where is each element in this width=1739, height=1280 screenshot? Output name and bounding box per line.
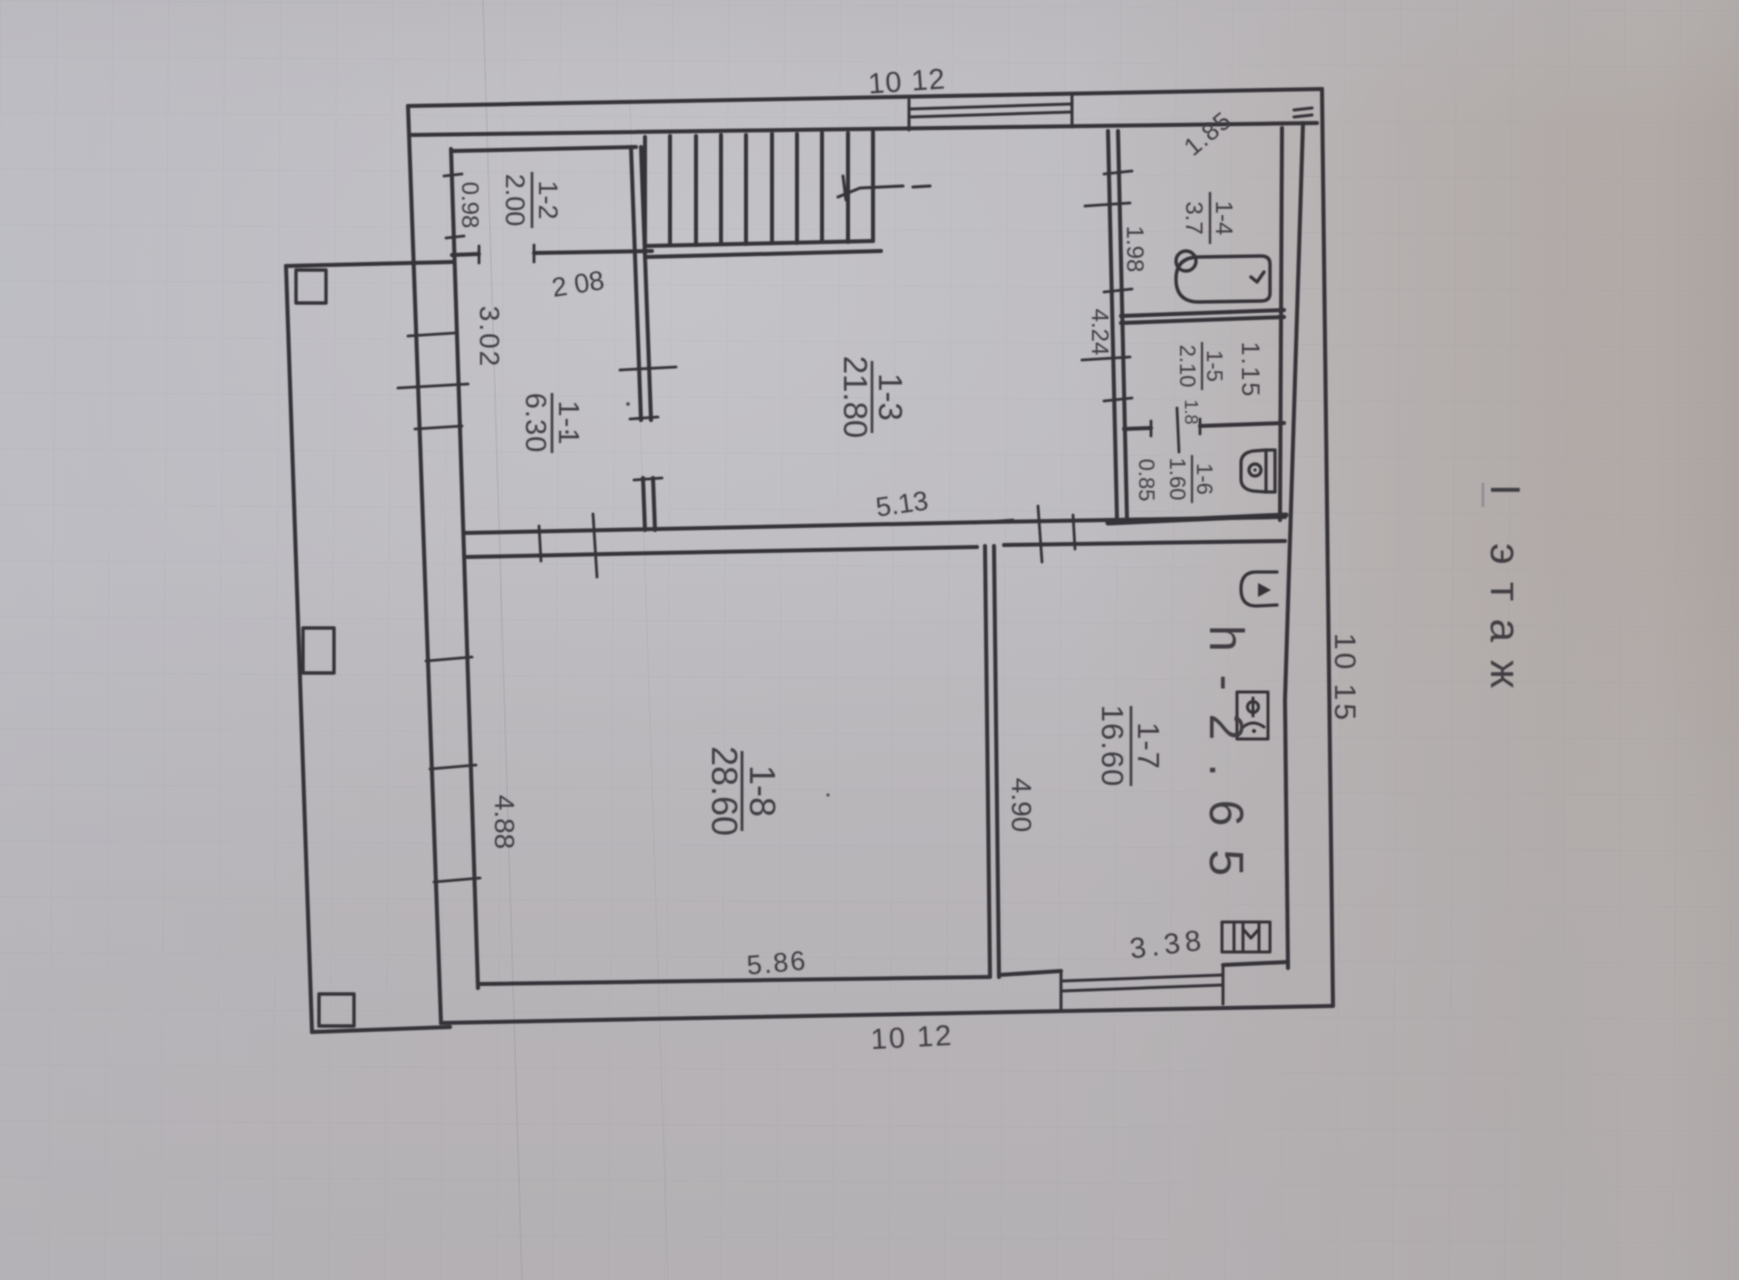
svg-text:h-2.65: h-2.65 (1199, 625, 1252, 899)
svg-text:1-4: 1-4 (1210, 201, 1237, 236)
svg-text:І этаж: І этаж (1482, 484, 1529, 706)
svg-text:0.85: 0.85 (1134, 459, 1159, 502)
svg-text:1.8: 1.8 (1181, 399, 1201, 424)
svg-text:1.15: 1.15 (1236, 342, 1264, 399)
svg-text:0.98: 0.98 (456, 182, 483, 229)
svg-text:4.90: 4.90 (1006, 778, 1037, 833)
svg-text:1-5: 1-5 (1202, 350, 1227, 382)
svg-text:1-2: 1-2 (533, 180, 563, 219)
svg-text:4.24: 4.24 (1086, 309, 1113, 356)
svg-text:3.7: 3.7 (1180, 201, 1207, 234)
svg-text:28.60: 28.60 (704, 746, 745, 836)
svg-text:1.60: 1.60 (1165, 458, 1190, 501)
svg-text:1-8: 1-8 (742, 765, 783, 817)
svg-text:10 12: 10 12 (867, 63, 947, 100)
svg-text:5.86: 5.86 (746, 945, 809, 980)
svg-text:1-6: 1-6 (1192, 463, 1217, 495)
svg-text:2.10: 2.10 (1175, 345, 1200, 388)
svg-text:10 12: 10 12 (870, 1020, 954, 1056)
svg-text:16.60: 16.60 (1095, 705, 1130, 788)
svg-text:10 15: 10 15 (1328, 633, 1361, 723)
svg-text:1-3: 1-3 (872, 373, 909, 421)
svg-text:3.02: 3.02 (474, 306, 505, 369)
svg-text:4.88: 4.88 (489, 795, 520, 850)
svg-text:1-1: 1-1 (552, 401, 584, 446)
svg-text:2.00: 2.00 (500, 174, 530, 227)
svg-text:1-7: 1-7 (1131, 722, 1166, 770)
svg-text:1.98: 1.98 (1121, 226, 1148, 273)
svg-text:21.80: 21.80 (837, 356, 874, 439)
svg-text:6.30: 6.30 (519, 393, 551, 453)
